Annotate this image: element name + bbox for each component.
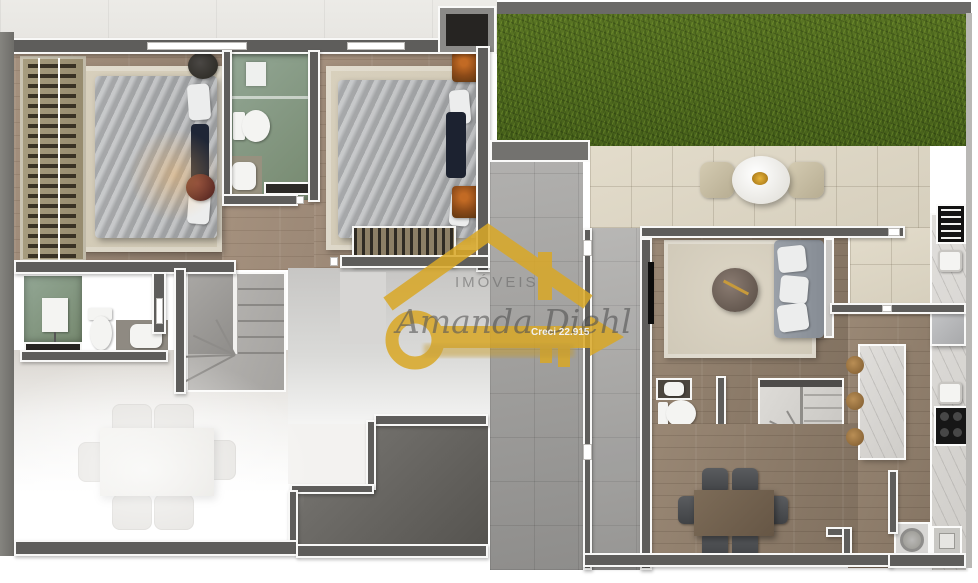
planter-wall xyxy=(490,140,590,162)
toilet-bowl xyxy=(242,110,270,142)
shower-tray xyxy=(246,62,266,86)
wall xyxy=(583,553,893,567)
house-roof-icon xyxy=(388,233,588,304)
wall xyxy=(20,350,168,362)
closet-clothes xyxy=(28,60,76,258)
wall xyxy=(888,553,966,568)
navy-cushion xyxy=(446,112,466,178)
door-leaf xyxy=(156,298,163,324)
wall xyxy=(374,414,488,426)
sofa-icon xyxy=(774,240,824,338)
floorplan-image: IMÓVEIS Amanda Diehl Creci 22.915 xyxy=(0,0,978,583)
stool-icon xyxy=(846,392,864,410)
coffee-table-icon xyxy=(712,268,758,312)
backyard-lawn xyxy=(497,13,967,146)
wall xyxy=(830,303,966,314)
outer-wall-top xyxy=(497,2,971,14)
door-jamb xyxy=(888,228,900,236)
wall xyxy=(14,260,236,274)
washing-machine-icon xyxy=(896,524,928,556)
stool-icon xyxy=(846,428,864,446)
toilet-bowl xyxy=(90,316,112,350)
stair-divider xyxy=(233,274,237,354)
wall xyxy=(640,226,905,238)
fridge-icon xyxy=(930,312,966,346)
wall xyxy=(222,194,298,206)
toilet-bowl xyxy=(666,400,696,427)
closet-icon xyxy=(20,56,86,262)
kitchen-island-icon xyxy=(860,346,904,458)
stair-top-edge xyxy=(760,380,842,387)
mirror-panel xyxy=(42,298,68,332)
wall xyxy=(296,544,488,558)
watermark-caps: IMÓVEIS xyxy=(455,274,539,291)
wall xyxy=(290,484,374,494)
dining-table-icon xyxy=(694,490,774,536)
wall xyxy=(14,540,298,556)
wall xyxy=(174,268,186,394)
patio-tiles xyxy=(850,228,932,306)
window xyxy=(347,42,405,50)
grill-vent-icon xyxy=(938,206,964,242)
wall xyxy=(308,50,320,202)
nightstand-icon xyxy=(188,52,218,79)
outer-wall-left xyxy=(0,32,14,556)
closet-rail xyxy=(38,58,40,260)
gold-dish xyxy=(752,172,768,185)
window xyxy=(147,42,247,50)
patio-chair-icon xyxy=(788,162,824,198)
watermark-script-name: Amanda Diehl xyxy=(393,302,632,341)
sink-icon xyxy=(232,162,256,190)
stool-icon xyxy=(846,356,864,374)
patio-chair-icon xyxy=(700,162,734,198)
utility-tank-icon xyxy=(934,528,960,554)
glass-shelf xyxy=(230,96,308,99)
wall xyxy=(824,238,834,338)
roof-hatch xyxy=(446,14,488,46)
wall xyxy=(888,470,898,534)
stair-treads xyxy=(238,274,284,354)
agency-watermark: IMÓVEIS Amanda Diehl Creci 22.915 xyxy=(330,205,670,385)
wall xyxy=(366,420,376,490)
lamp-glow xyxy=(120,130,230,220)
closet-rail xyxy=(58,58,60,260)
door-jamb xyxy=(296,196,304,204)
sink-icon xyxy=(938,250,962,272)
sink-icon xyxy=(938,382,962,404)
overexposure-wash xyxy=(14,360,304,560)
wall xyxy=(222,50,232,202)
door-jamb xyxy=(882,305,892,312)
stove-icon xyxy=(936,408,966,444)
outer-wall-right xyxy=(966,13,972,568)
watermark-creci: Creci 22.915 xyxy=(531,327,590,338)
door-jamb xyxy=(583,444,592,460)
